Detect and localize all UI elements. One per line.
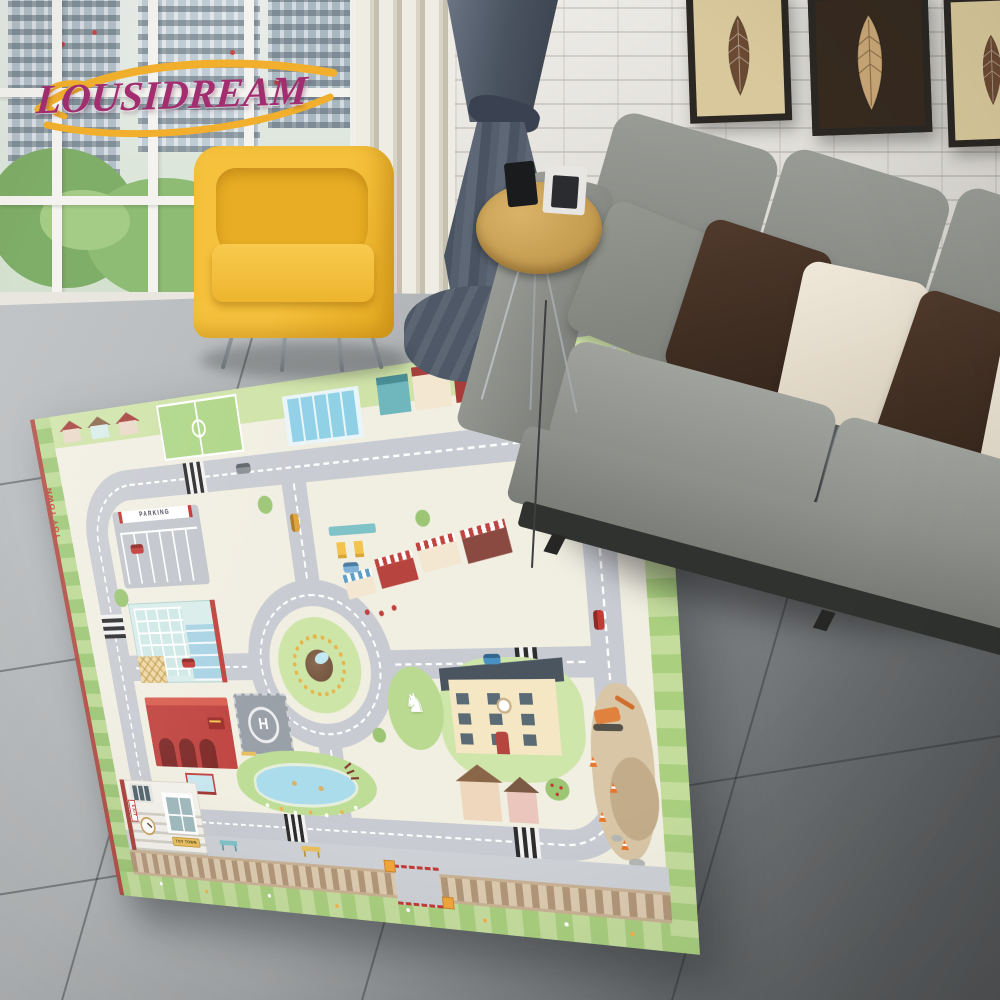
- window-mullion: [52, 0, 62, 302]
- toy-car: [593, 610, 605, 630]
- wall-art-frame: [808, 0, 933, 136]
- sofa-leg: [813, 609, 836, 631]
- house: [90, 424, 110, 439]
- brand-name: LOUSIDREAM: [34, 62, 348, 129]
- parking-slots: [120, 527, 205, 585]
- flower-dots: [266, 803, 270, 807]
- table-radio-face: [551, 175, 579, 209]
- apple-dots: [550, 784, 554, 787]
- leaf-icon: [718, 6, 760, 106]
- table-clock: [504, 161, 538, 208]
- duck: [292, 781, 298, 786]
- toy-car: [130, 544, 144, 554]
- leaf-icon: [845, 8, 895, 117]
- zebra-crosswalk: [101, 614, 126, 638]
- window-mullion: [148, 0, 158, 302]
- wall-art-frame: [943, 0, 1000, 148]
- fuel-pump: [353, 541, 364, 558]
- zebra-crosswalk: [284, 814, 308, 843]
- scene: TOY TOWN: [0, 0, 1000, 1000]
- toy-car: [181, 658, 195, 667]
- duck: [318, 786, 324, 791]
- excavator-track: [593, 724, 624, 731]
- crossing-warning-sign: [442, 896, 455, 909]
- house: [460, 781, 503, 822]
- toy-car: [343, 562, 360, 573]
- level-crossing: [393, 864, 443, 908]
- flower-dots: [160, 882, 164, 886]
- brand-watermark: LOUSIDREAM: [26, 40, 349, 147]
- cafe-tables: [364, 609, 370, 616]
- toy-car: [235, 463, 251, 475]
- park-bench: [241, 752, 257, 756]
- fire-truck-ladder: [209, 720, 221, 722]
- school-door: [495, 732, 510, 755]
- crossing-warning-sign: [383, 860, 396, 873]
- toy-car: [483, 654, 501, 665]
- house: [63, 428, 82, 443]
- house: [507, 792, 540, 824]
- swimming-pool: [282, 386, 365, 447]
- zebra-crosswalk: [513, 827, 541, 859]
- market-stand: [137, 656, 168, 683]
- horse-statue-icon: ♞: [397, 687, 433, 722]
- shop: [376, 373, 412, 415]
- fire-truck: [207, 717, 225, 729]
- house: [119, 420, 139, 436]
- leaf-icon: [973, 11, 1000, 128]
- wall-art-frame: [686, 0, 793, 124]
- armchair-seat-cushion: [212, 244, 374, 302]
- sofa-leg: [543, 533, 566, 555]
